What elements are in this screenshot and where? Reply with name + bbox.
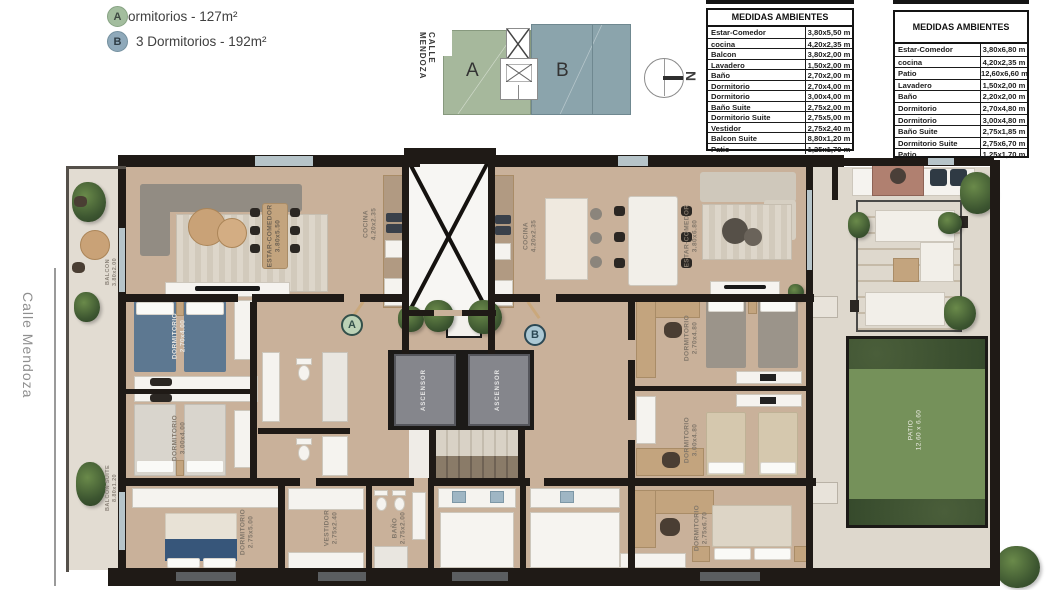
table-row: Dormitorio3,00x4,80 m bbox=[895, 114, 1027, 126]
measurements-table-b: MEDIDAS AMBIENTES Estar-Comedor3,80x6,80… bbox=[893, 10, 1029, 158]
door-gap bbox=[628, 340, 635, 360]
room-name-cell: cocina bbox=[895, 57, 980, 68]
stool bbox=[590, 232, 602, 244]
room-size-cell: 2,70x4,00 m bbox=[805, 81, 852, 91]
wall bbox=[832, 160, 838, 200]
room-name-cell: Baño Suite bbox=[895, 126, 980, 137]
balcony-edge bbox=[66, 166, 126, 169]
window bbox=[255, 156, 313, 166]
table-title: MEDIDAS AMBIENTES bbox=[895, 12, 1027, 44]
plant bbox=[944, 296, 976, 330]
wall bbox=[428, 486, 434, 574]
stool bbox=[590, 208, 602, 220]
door-gap bbox=[628, 420, 635, 440]
desk-chair bbox=[150, 378, 172, 386]
table-body: Estar-Comedor3,80x5,50 mcocina4,20x2,35 … bbox=[708, 27, 852, 154]
window bbox=[700, 572, 760, 581]
dining-chair bbox=[290, 226, 300, 235]
outdoor-sofa bbox=[865, 292, 945, 326]
toilet bbox=[298, 365, 310, 381]
sofa-arm bbox=[140, 184, 170, 256]
wall bbox=[838, 158, 994, 166]
legend-label-b: 3 Dormitorios - 192m² bbox=[136, 34, 267, 49]
table-row: Balcon Suite8,80x1,20 m bbox=[708, 132, 852, 143]
lamp bbox=[760, 374, 776, 381]
kitchen-sink bbox=[494, 243, 511, 260]
table-row: Estar-Comedor3,80x6,80 m bbox=[895, 44, 1027, 56]
legend-badge-b: B bbox=[107, 31, 128, 52]
room-size-cell: 4,20x2,35 m bbox=[980, 57, 1027, 68]
tv bbox=[724, 285, 766, 289]
siteplan-letter-a: A bbox=[466, 60, 479, 82]
room-label-estar-a: ESTAR-COMEDOR 3.80x5.50 bbox=[267, 205, 284, 268]
wall bbox=[488, 162, 495, 314]
hedge bbox=[849, 499, 985, 525]
plant bbox=[74, 292, 100, 322]
wall bbox=[556, 294, 632, 302]
room-label-estar-b: ESTAR-COMEDOR 3.80x6.80 bbox=[684, 205, 701, 268]
coffee-table bbox=[744, 228, 762, 246]
room-name-cell: Dormitorio bbox=[895, 103, 980, 114]
legend-item-b: B 3 Dormitorios - 192m² bbox=[107, 31, 267, 52]
siteplan-unit-b-block bbox=[531, 24, 631, 115]
table-row: cocina4,20x2,35 m bbox=[708, 38, 852, 49]
balcony-chair bbox=[74, 196, 87, 207]
nightstand bbox=[176, 460, 184, 476]
room-size-cell: 1,50x2,00 m bbox=[805, 60, 852, 70]
bed-pillow bbox=[708, 462, 744, 474]
wardrobe bbox=[132, 488, 282, 508]
room-name-cell: Lavadero bbox=[708, 60, 805, 70]
room-name-cell: Baño bbox=[895, 91, 980, 102]
wall bbox=[122, 478, 816, 486]
outdoor-chaise bbox=[920, 242, 954, 282]
dining-chair bbox=[614, 232, 625, 242]
siteplan-notch bbox=[443, 30, 452, 56]
glass-door bbox=[807, 190, 812, 270]
sofa bbox=[700, 172, 796, 202]
window bbox=[176, 572, 236, 581]
room-label-dormitorio-b1: DORMITORIO 2.70x4.80 bbox=[684, 315, 701, 361]
cooktop bbox=[495, 215, 511, 224]
desk-return bbox=[634, 490, 656, 548]
table-row: Patio1,25x1,70 m bbox=[708, 143, 852, 154]
room-name-cell: Baño bbox=[708, 70, 805, 80]
unit-b-entry-badge: B bbox=[524, 324, 546, 346]
room-label-dormitorio-a2: DORMITORIO 3.00x4.00 bbox=[172, 415, 189, 461]
glass-door bbox=[119, 228, 125, 292]
shower bbox=[374, 546, 408, 570]
room-name-cell: Dormitorio bbox=[708, 91, 805, 101]
room-name-cell: Baño Suite bbox=[708, 102, 805, 112]
table-body: Estar-Comedor3,80x6,80 mcocina4,20x2,35 … bbox=[895, 44, 1027, 160]
laundry-machine bbox=[322, 436, 348, 476]
wall bbox=[360, 294, 408, 302]
room-size-cell: 3,80x5,50 m bbox=[805, 27, 852, 38]
compass-icon bbox=[644, 58, 684, 98]
wall bbox=[122, 294, 238, 302]
coffee-table bbox=[893, 258, 919, 282]
balcony-chair bbox=[72, 262, 85, 273]
room-size-cell: 1,50x2,00 m bbox=[980, 80, 1027, 91]
light-well bbox=[810, 296, 838, 318]
room-size-cell: 2,75x5,00 m bbox=[805, 112, 852, 122]
table-row: cocina4,20x2,35 m bbox=[895, 56, 1027, 68]
balcony-table bbox=[80, 230, 110, 260]
room-label-vestidor: VESTIDOR 2.75x2.40 bbox=[324, 510, 341, 546]
coffee-table bbox=[217, 218, 247, 248]
window bbox=[928, 158, 954, 165]
table-row: Balcon3,80x2,00 m bbox=[708, 48, 852, 59]
room-label-balcon-a: BALCON 3.80x2.00 bbox=[105, 258, 119, 286]
sink bbox=[930, 169, 947, 186]
sink bbox=[560, 491, 574, 503]
siteplan-divider bbox=[592, 24, 593, 115]
room-size-cell: 3,00x4,00 m bbox=[805, 91, 852, 101]
vanity bbox=[530, 488, 620, 508]
wall bbox=[404, 148, 496, 164]
dining-chair bbox=[614, 258, 625, 268]
room-size-cell: 3,00x4,80 m bbox=[980, 115, 1027, 126]
wall bbox=[366, 486, 372, 574]
room-size-cell: 2,70x2,00 m bbox=[805, 70, 852, 80]
bed bbox=[712, 505, 792, 547]
room-name-cell: Dormitorio bbox=[708, 81, 805, 91]
table-row: Dormitorio3,00x4,00 m bbox=[708, 90, 852, 101]
room-name-cell: Balcon Suite bbox=[708, 133, 805, 143]
cooktop bbox=[386, 213, 403, 222]
bed-pillow bbox=[203, 558, 236, 568]
room-name-cell: Dormitorio Suite bbox=[708, 112, 805, 122]
wall bbox=[488, 310, 495, 354]
room-name-cell: Lavadero bbox=[895, 80, 980, 91]
wall bbox=[520, 486, 526, 574]
window bbox=[318, 572, 366, 581]
room-label-dormitorio-b2: DORMITORIO 3.00x4.80 bbox=[684, 417, 701, 463]
closet bbox=[288, 488, 364, 510]
hedge bbox=[849, 339, 985, 369]
lamp bbox=[760, 397, 776, 404]
room-name-cell: Patio bbox=[895, 68, 980, 79]
wall bbox=[632, 294, 814, 302]
bathroom-wall bbox=[258, 428, 350, 434]
table-row: Baño2,20x2,00 m bbox=[895, 90, 1027, 102]
bed-pillow bbox=[136, 460, 174, 473]
vanity bbox=[262, 352, 280, 422]
unit-a-entry-badge: A bbox=[341, 314, 363, 336]
siteplan-stair-void bbox=[506, 28, 530, 60]
room-size-cell: 2,20x2,00 m bbox=[980, 91, 1027, 102]
table-row: Baño Suite2,75x2,00 m bbox=[708, 101, 852, 112]
plant bbox=[468, 300, 502, 334]
room-size-cell: 2,70x4,80 m bbox=[980, 103, 1027, 114]
bed-pillow bbox=[714, 548, 751, 560]
room-name-cell: Dormitorio Suite bbox=[895, 138, 980, 149]
room-size-cell: 1,25x1,70 m bbox=[805, 144, 852, 154]
room-size-cell: 12,60x6,60 m bbox=[980, 68, 1027, 79]
door-gap bbox=[434, 310, 462, 316]
table-row: Estar-Comedor3,80x5,50 m bbox=[708, 27, 852, 38]
wall bbox=[402, 162, 409, 314]
plant bbox=[996, 546, 1040, 588]
bed-pillow bbox=[167, 558, 200, 568]
table-title: MEDIDAS AMBIENTES bbox=[708, 10, 852, 27]
room-size-cell: 3,80x6,80 m bbox=[980, 44, 1027, 56]
wall bbox=[488, 155, 844, 167]
bidet-tank bbox=[392, 490, 406, 496]
toilet bbox=[376, 497, 387, 511]
dining-chair bbox=[290, 208, 300, 217]
stairs-upper bbox=[436, 430, 518, 456]
legend-item-a: A 3 Dormitorios - 127m² bbox=[107, 9, 238, 24]
room-size-cell: 4,20x2,35 m bbox=[805, 39, 852, 49]
window bbox=[452, 572, 508, 581]
dining-table bbox=[628, 196, 678, 286]
room-size-cell: 2,75x2,00 m bbox=[805, 102, 852, 112]
bed-duvet bbox=[165, 513, 237, 541]
room-label-dormitorio-suite-b: DORMITORIO 2.75x6.70 bbox=[694, 505, 711, 551]
bed-pillow bbox=[186, 460, 224, 473]
stool bbox=[590, 256, 602, 268]
kitchen-sink bbox=[385, 240, 403, 258]
dining-chair bbox=[250, 244, 260, 253]
street-name-label: Calle Mendoza bbox=[20, 292, 36, 398]
room-name-cell: cocina bbox=[708, 39, 805, 49]
compass-north-label: N bbox=[683, 71, 699, 81]
room-size-cell: 2,75x6,70 m bbox=[980, 138, 1027, 149]
shower-tray bbox=[440, 512, 514, 568]
vanity bbox=[412, 492, 426, 540]
floor-plan-sheet: { "legend": { "items": [ {"badge": "A", … bbox=[0, 0, 1050, 590]
room-label-dormitorio-suite-a: DORMITORIO 2.75x5.00 bbox=[240, 509, 257, 555]
wall bbox=[402, 310, 409, 354]
desk-chair bbox=[664, 322, 682, 338]
bed-pillow bbox=[760, 462, 796, 474]
table-row: Baño2,70x2,00 m bbox=[708, 69, 852, 80]
room-label-balcon-suite: BALCON SUITE 8.80x1.20 bbox=[105, 465, 119, 511]
desk-chair bbox=[662, 452, 680, 468]
table-row: Dormitorio Suite2,75x6,70 m bbox=[895, 137, 1027, 149]
room-size-cell: 3,80x2,00 m bbox=[805, 49, 852, 59]
door-gap bbox=[530, 478, 544, 486]
kitchen-island bbox=[545, 198, 588, 280]
sink bbox=[452, 491, 466, 503]
table-row: Lavadero1,50x2,00 m bbox=[708, 59, 852, 70]
desk-chair bbox=[150, 394, 172, 402]
table-row: Lavadero1,50x2,00 m bbox=[895, 79, 1027, 91]
room-size-cell: 2,75x2,40 m bbox=[805, 123, 852, 133]
bed-pillow bbox=[754, 548, 791, 560]
stairs-lower bbox=[436, 456, 518, 478]
cooktop bbox=[386, 224, 403, 233]
wall bbox=[122, 389, 252, 394]
door-gap bbox=[300, 478, 316, 486]
bidet bbox=[394, 497, 405, 511]
window bbox=[618, 156, 648, 166]
room-name-cell: Vestidor bbox=[708, 123, 805, 133]
plant bbox=[848, 212, 870, 238]
plant bbox=[938, 212, 962, 234]
toilet bbox=[298, 445, 310, 461]
table-row: Vestidor2,75x2,40 m bbox=[708, 122, 852, 133]
grill-plate bbox=[890, 168, 906, 184]
street-line bbox=[54, 268, 56, 586]
measurements-table-a: MEDIDAS AMBIENTES Estar-Comedor3,80x5,50… bbox=[706, 8, 854, 151]
plant bbox=[76, 462, 106, 506]
wall bbox=[252, 294, 344, 302]
siteplan-core-box bbox=[500, 58, 538, 100]
closet bbox=[636, 396, 656, 444]
wall bbox=[492, 294, 540, 302]
room-size-cell: 8,80x1,20 m bbox=[805, 133, 852, 143]
bed-pillow bbox=[186, 302, 224, 315]
glass-door bbox=[119, 492, 125, 550]
room-name-cell: Dormitorio bbox=[895, 115, 980, 126]
wall bbox=[990, 160, 1000, 575]
bed-pillow bbox=[136, 302, 174, 315]
table-row: Baño Suite2,75x1,85 m bbox=[895, 125, 1027, 137]
elevator-label: ASCENSOR bbox=[421, 369, 429, 411]
room-label-dormitorio-a1: DORMITORIO 2.70x4.00 bbox=[172, 313, 189, 359]
cooktop bbox=[495, 226, 511, 235]
toilet-tank bbox=[296, 358, 312, 365]
wall bbox=[632, 386, 810, 391]
balcony-edge bbox=[66, 168, 69, 572]
table-row: Dormitorio2,70x4,00 m bbox=[708, 80, 852, 91]
siteplan-street-label: CALLE MENDOZA bbox=[418, 32, 436, 114]
room-label-patio: PATIO 12.60 x 6.60 bbox=[908, 410, 925, 451]
fridge bbox=[493, 280, 513, 306]
door-gap bbox=[414, 478, 428, 486]
stair-void bbox=[409, 162, 488, 312]
dining-chair bbox=[250, 226, 260, 235]
table2-top-rule bbox=[893, 0, 1029, 4]
legend-badge-a: A bbox=[107, 6, 128, 27]
siteplan-letter-b: B bbox=[556, 60, 569, 82]
pergola-post bbox=[850, 300, 859, 312]
table-row: Patio12,60x6,60 m bbox=[895, 67, 1027, 79]
tv bbox=[195, 286, 260, 291]
desk-return bbox=[636, 300, 656, 378]
toilet-tank bbox=[374, 490, 388, 496]
table-row: Dormitorio Suite2,75x5,00 m bbox=[708, 111, 852, 122]
vanity bbox=[438, 488, 516, 508]
room-name-cell: Estar-Comedor bbox=[895, 44, 980, 56]
room-name-cell: Estar-Comedor bbox=[708, 27, 805, 38]
dining-chair bbox=[614, 206, 625, 216]
shower-tray bbox=[530, 512, 620, 568]
room-name-cell: Balcon bbox=[708, 49, 805, 59]
sink bbox=[490, 491, 504, 503]
room-name-cell: Patio bbox=[708, 144, 805, 154]
room-label-banio-suite-a: BAÑO 2.75x2.00 bbox=[392, 512, 409, 545]
toilet-tank bbox=[296, 438, 312, 445]
dining-chair bbox=[290, 244, 300, 253]
table1-top-rule bbox=[706, 0, 854, 4]
wall bbox=[278, 486, 285, 574]
table-row: Dormitorio2,70x4,80 m bbox=[895, 102, 1027, 114]
desk-chair bbox=[660, 518, 680, 536]
plant bbox=[424, 300, 454, 332]
elevator-label: ASCENSOR bbox=[495, 369, 503, 411]
dining-chair bbox=[250, 208, 260, 217]
room-label-cocina-a: COCINA 4.20x2.35 bbox=[363, 208, 380, 241]
room-size-cell: 2,75x1,85 m bbox=[980, 126, 1027, 137]
wall bbox=[108, 568, 1000, 586]
shower bbox=[322, 352, 348, 422]
room-label-cocina-b: COCINA 4.20x2.35 bbox=[523, 220, 540, 253]
